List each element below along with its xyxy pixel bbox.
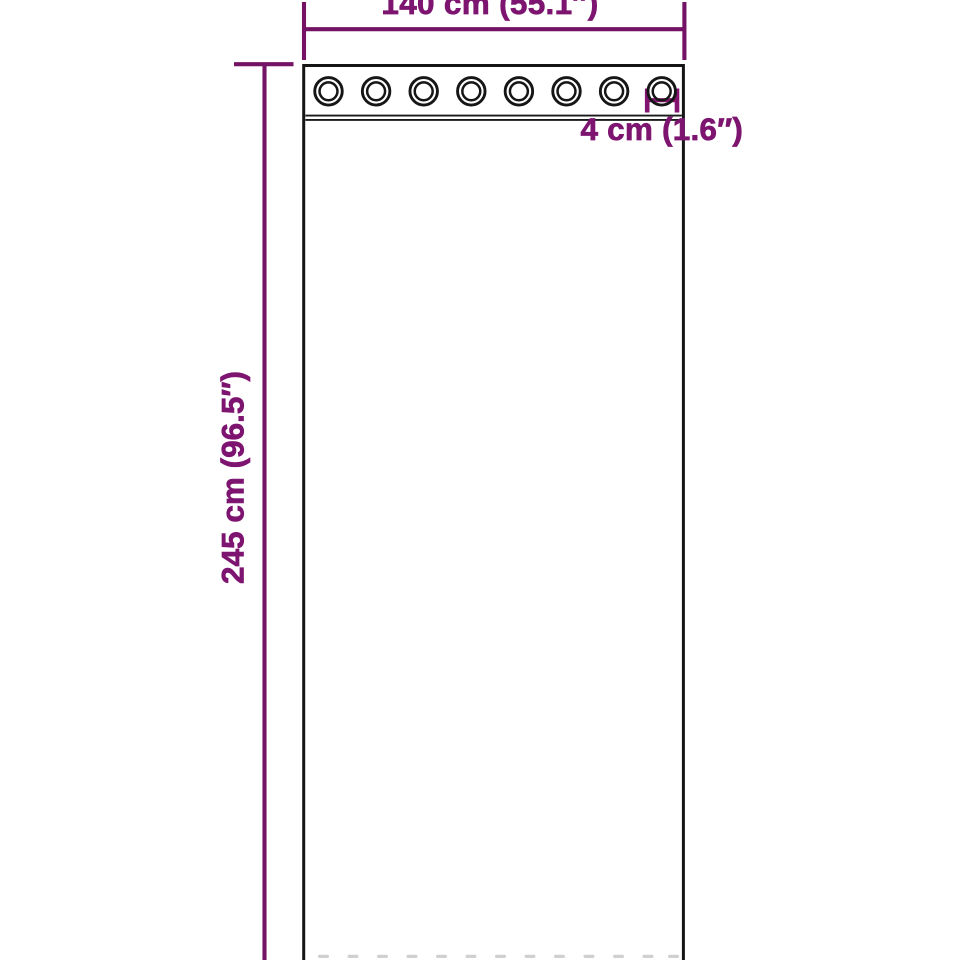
svg-text:4 cm (1.6″): 4 cm (1.6″) <box>581 111 744 147</box>
svg-text:245 cm (96.5″): 245 cm (96.5″) <box>215 371 251 584</box>
svg-text:140 cm (55.1″): 140 cm (55.1″) <box>381 0 598 21</box>
